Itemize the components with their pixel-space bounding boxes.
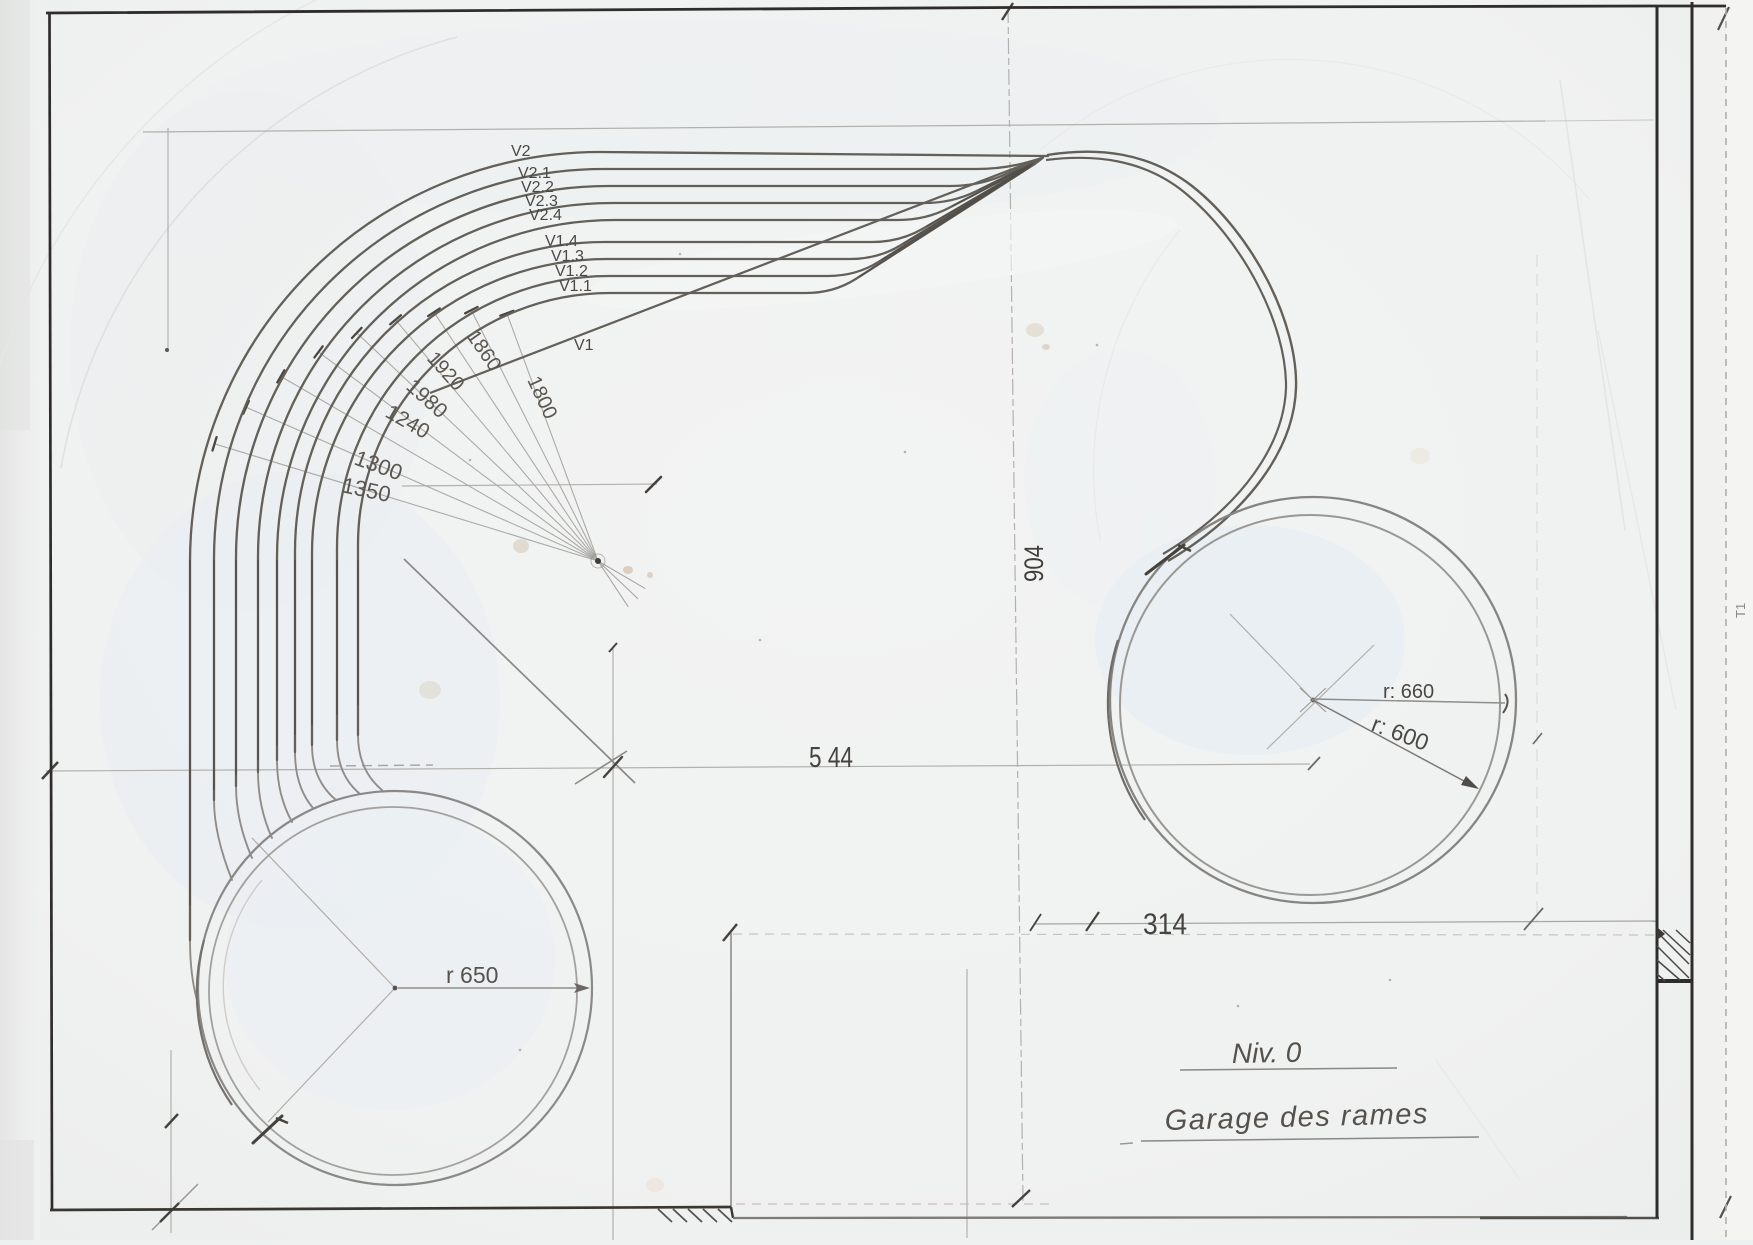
- svg-text:V2.4: V2.4: [529, 207, 562, 224]
- svg-text:904: 904: [1019, 545, 1049, 582]
- svg-text:V2: V2: [511, 143, 531, 160]
- svg-text:V1.1: V1.1: [559, 278, 592, 295]
- svg-text:r: 660: r: 660: [1383, 681, 1434, 703]
- svg-text:r 650: r 650: [446, 962, 498, 988]
- svg-text:V1: V1: [574, 337, 594, 354]
- svg-text:T1: T1: [1733, 603, 1748, 618]
- svg-text:Niv. 0: Niv. 0: [1232, 1037, 1302, 1069]
- svg-text:5 44: 5 44: [809, 742, 853, 774]
- svg-text:314: 314: [1143, 908, 1187, 941]
